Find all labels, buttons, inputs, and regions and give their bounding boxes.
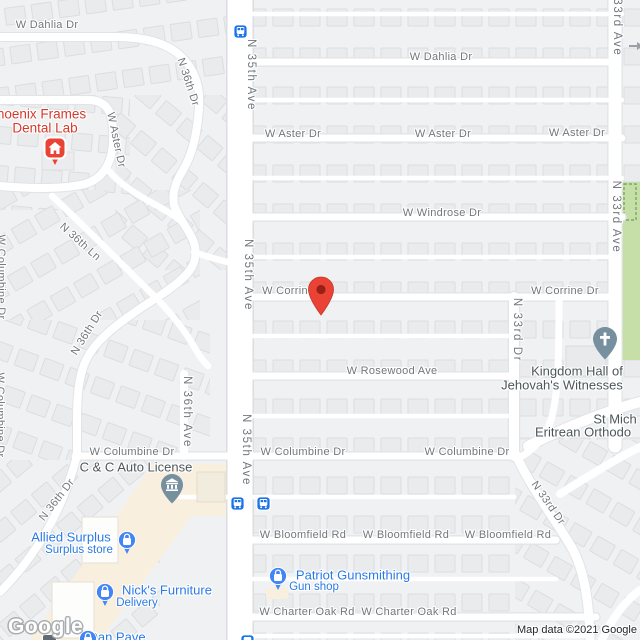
poi-label-allied-surplus[interactable]: Allied Surplus — [31, 530, 111, 545]
poi-label-phoenix-frames[interactable]: Phoenix Frames — [0, 107, 86, 122]
transit-stop bus-icon[interactable] — [233, 24, 248, 39]
poi-label-dan-pave[interactable]: Dan Pave — [88, 630, 145, 640]
poi-label-nicks-furniture[interactable]: Nick's Furniture — [122, 583, 212, 598]
poi-label-kingdom-hall-2[interactable]: Jehovah's Witnesses — [501, 378, 623, 393]
one-way-right-arrow-icon — [629, 41, 640, 51]
street-label: W Bloomfield Rd — [465, 529, 551, 541]
transit-stop bus-icon[interactable] — [256, 496, 271, 511]
street-label: W Charter Oak Rd — [259, 606, 354, 618]
street-label: N 33rd Ave — [610, 181, 622, 254]
poi-label-kingdom-hall[interactable]: Kingdom Hall of — [531, 364, 623, 379]
street-label: N 36th Ave — [181, 376, 193, 448]
poi-label-cc-auto-license[interactable]: C & C Auto License — [80, 460, 193, 475]
street-label: W Dahlia Dr — [410, 51, 473, 63]
street-label: W Rosewood Ave — [347, 365, 438, 377]
allied-surplus-pin bag-icon[interactable] — [118, 531, 136, 556]
street-label: N 35th Ave — [242, 239, 254, 311]
map-viewport[interactable]: W Dahlia Dr W Dahlia Dr W Aster Dr W Ast… — [0, 0, 640, 640]
nicks-furniture-pin bag-icon[interactable] — [96, 583, 114, 608]
street-label: W Aster Dr — [549, 127, 605, 139]
street-label: W Columbine Dr — [0, 235, 7, 320]
street-label: W Bloomfield Rd — [260, 529, 346, 541]
church-pin cross-icon[interactable] — [593, 327, 617, 360]
street-label: W Dahlia Dr — [16, 19, 79, 31]
transit-stop bus-icon[interactable] — [230, 496, 245, 511]
street-label: N 35th Ave — [240, 414, 252, 486]
transit-stop bus-icon[interactable] — [240, 634, 255, 640]
red-map-pin[interactable] — [307, 276, 335, 317]
street-label: W Aster Dr — [265, 128, 321, 140]
auto-license-pin bank-icon[interactable] — [161, 474, 183, 504]
street-label: N 33rd Dr — [511, 298, 523, 362]
poi-label-patriot-gunsmithing-2[interactable]: Gun shop — [289, 581, 339, 593]
street-label: W Corrine Dr — [531, 285, 599, 297]
street-label: W Columbine Dr — [261, 446, 346, 458]
street-label: W Columbine Dr — [90, 446, 175, 458]
poi-label-allied-surplus-2[interactable]: Surplus store — [45, 544, 113, 556]
map-data-copyright: Map data ©2021 Google — [517, 624, 637, 636]
street-label: W Bloomfield Rd — [363, 529, 449, 541]
patriot-gunsmithing-pin bag-icon[interactable] — [269, 567, 287, 592]
poi-label-st-michael-2[interactable]: Eritrean Orthodo — [535, 425, 631, 440]
street-label: W Columbine Dr — [425, 446, 510, 458]
dental-lab-pin house-icon[interactable] — [43, 136, 67, 166]
street-label: W Windrose Dr — [403, 207, 481, 219]
google-logo[interactable]: Google — [8, 615, 83, 639]
street-label: N 33rd Ave — [611, 0, 623, 56]
street-label: W Aster Dr — [415, 128, 471, 140]
street-label: W Charter Oak Rd — [361, 606, 456, 618]
poi-label-phoenix-frames-2[interactable]: Dental Lab — [12, 121, 77, 136]
street-label: N 35th Ave — [245, 39, 257, 111]
street-label: W Columbine Dr — [0, 373, 6, 458]
poi-label-nicks-furniture-2[interactable]: Delivery — [116, 597, 158, 609]
